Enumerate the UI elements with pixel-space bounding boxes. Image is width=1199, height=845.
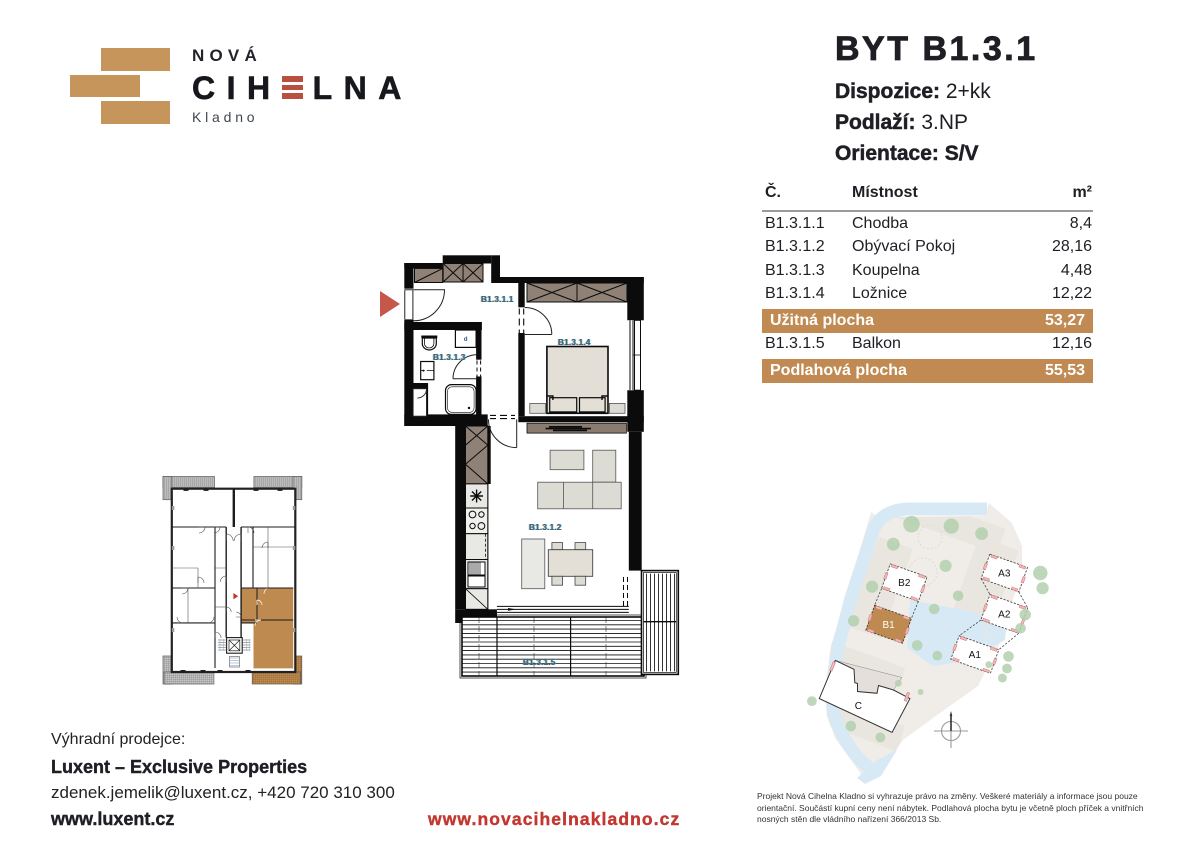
svg-text:B1: B1 xyxy=(882,620,895,631)
svg-text:B2: B2 xyxy=(898,578,911,589)
svg-text:A1: A1 xyxy=(969,650,982,661)
svg-text:B1.3.1.2: B1.3.1.2 xyxy=(529,523,562,532)
svg-text:B1.3.1.1: B1.3.1.1 xyxy=(481,295,514,304)
svg-text:B1.3.1.3: B1.3.1.3 xyxy=(433,353,466,362)
svg-text:C: C xyxy=(855,701,862,712)
svg-text:A3: A3 xyxy=(998,569,1011,580)
svg-text:d: d xyxy=(464,337,468,343)
svg-text:B1.3.1.5: B1.3.1.5 xyxy=(523,658,556,667)
svg-text:B1.3.1.4: B1.3.1.4 xyxy=(558,338,591,347)
svg-text:A2: A2 xyxy=(998,609,1011,620)
